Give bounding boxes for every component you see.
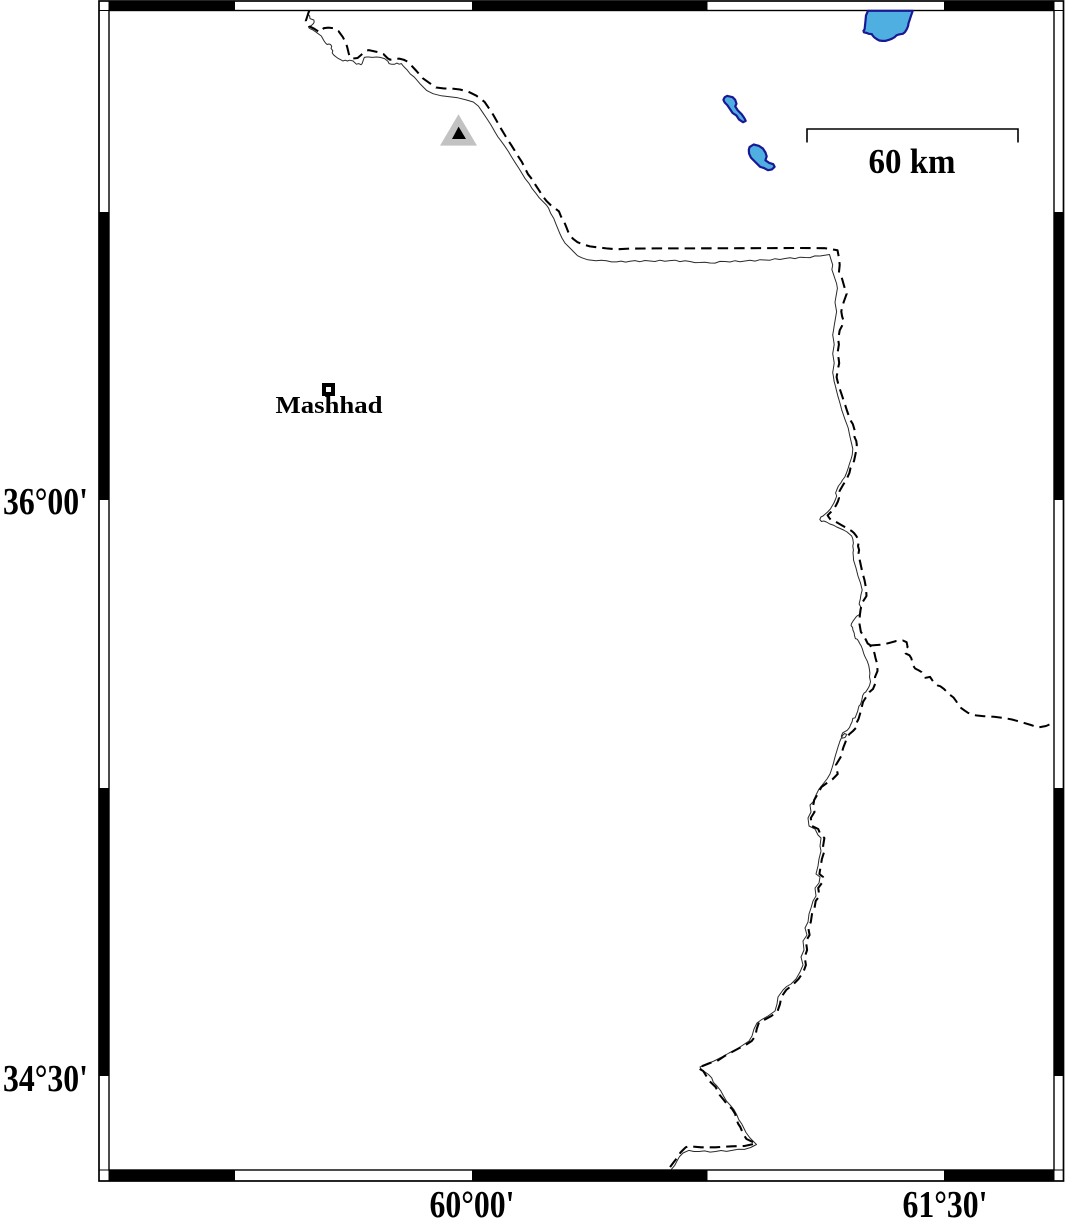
- svg-text:36°00': 36°00': [3, 481, 88, 523]
- svg-text:60°00': 60°00': [430, 1184, 515, 1219]
- svg-text:60 km: 60 km: [869, 142, 956, 181]
- svg-text:34°30': 34°30': [3, 1058, 88, 1100]
- svg-text:61°30': 61°30': [903, 1184, 988, 1219]
- svg-text:Mashhad: Mashhad: [276, 393, 384, 419]
